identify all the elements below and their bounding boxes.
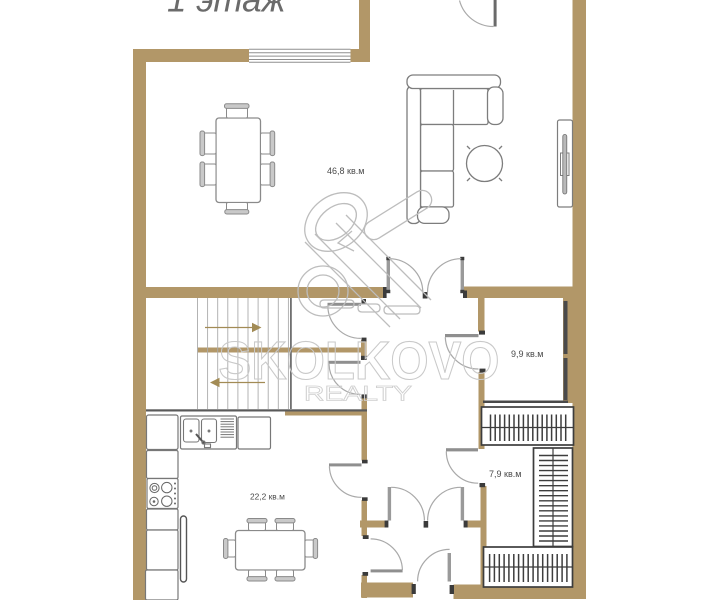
svg-text:7,9 кв.м: 7,9 кв.м xyxy=(489,469,521,479)
svg-text:REALTY: REALTY xyxy=(304,382,412,406)
svg-text:46,8 кв.м: 46,8 кв.м xyxy=(327,166,364,176)
svg-text:22,2 кв.м: 22,2 кв.м xyxy=(250,492,285,502)
svg-text:9,9 кв.м: 9,9 кв.м xyxy=(511,349,543,359)
svg-text:1 этаж: 1 этаж xyxy=(167,0,288,20)
